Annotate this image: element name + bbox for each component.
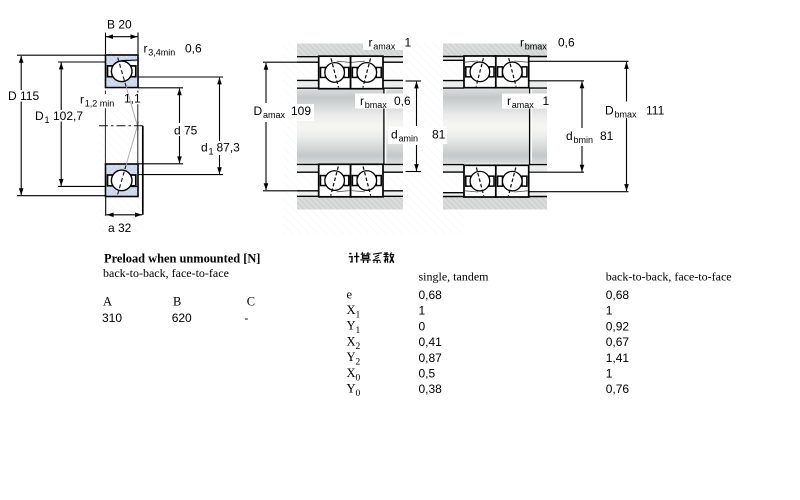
svg-text:X: X	[347, 303, 356, 317]
svg-text:X: X	[347, 366, 356, 380]
svg-text:1,1: 1,1	[124, 92, 141, 106]
svg-text:amax: amax	[263, 110, 286, 120]
svg-text:D: D	[254, 104, 263, 118]
svg-text:d: d	[201, 141, 208, 155]
svg-text:1: 1	[209, 147, 214, 157]
svg-text:amax: amax	[373, 42, 396, 52]
svg-text:0,68: 0,68	[419, 288, 443, 302]
svg-text:0,67: 0,67	[606, 335, 630, 349]
svg-text:r: r	[369, 36, 373, 50]
svg-text:0,92: 0,92	[606, 319, 630, 333]
svg-text:bmax: bmax	[615, 110, 638, 120]
svg-text:d: d	[566, 129, 573, 143]
svg-text:back-to-back, face-to-face: back-to-back, face-to-face	[103, 266, 229, 280]
svg-text:0,6: 0,6	[185, 42, 202, 56]
svg-text:1: 1	[405, 36, 412, 50]
svg-text:B: B	[173, 295, 181, 309]
svg-text:d 75: d 75	[174, 124, 198, 138]
svg-text:620: 620	[172, 311, 192, 325]
svg-text:a 32: a 32	[108, 221, 132, 235]
svg-text:X: X	[347, 334, 356, 348]
svg-text:1: 1	[419, 304, 426, 318]
svg-text:87,3: 87,3	[217, 141, 241, 155]
svg-text:C: C	[247, 295, 255, 309]
svg-text:A: A	[103, 295, 112, 309]
svg-text:d: d	[391, 128, 398, 142]
svg-text:-: -	[244, 311, 248, 325]
svg-text:3,4min: 3,4min	[148, 48, 175, 58]
svg-text:amax: amax	[512, 100, 535, 110]
svg-text:0,76: 0,76	[606, 382, 630, 396]
svg-text:1: 1	[356, 311, 361, 321]
svg-text:bmax: bmax	[365, 100, 388, 110]
svg-text:109: 109	[291, 104, 311, 118]
svg-text:0,41: 0,41	[419, 335, 443, 349]
svg-text:111: 111	[646, 104, 665, 118]
svg-text:1: 1	[543, 94, 550, 108]
svg-text:e: e	[347, 287, 353, 301]
svg-text:0: 0	[356, 389, 361, 399]
svg-text:0,87: 0,87	[419, 351, 443, 365]
svg-text:single, tandem: single, tandem	[419, 270, 490, 284]
svg-text:bmin: bmin	[574, 135, 594, 145]
svg-text:r: r	[80, 93, 84, 107]
svg-text:r: r	[507, 94, 511, 108]
svg-text:D: D	[605, 104, 614, 118]
svg-text:Y: Y	[347, 319, 356, 333]
svg-text:Y: Y	[347, 350, 356, 364]
svg-text:1: 1	[606, 367, 613, 381]
svg-text:0,6: 0,6	[394, 94, 411, 108]
svg-text:1: 1	[356, 326, 361, 336]
svg-text:back-to-back, face-to-face: back-to-back, face-to-face	[606, 270, 732, 284]
svg-text:Y: Y	[347, 382, 356, 396]
svg-text:102,7: 102,7	[53, 109, 83, 123]
svg-text:81: 81	[432, 128, 446, 142]
svg-text:r: r	[520, 36, 524, 50]
svg-text:r: r	[360, 94, 364, 108]
svg-text:r: r	[144, 42, 148, 56]
svg-text:0,68: 0,68	[606, 288, 630, 302]
svg-text:1: 1	[45, 115, 50, 125]
svg-text:0: 0	[356, 373, 361, 383]
svg-text:0,6: 0,6	[558, 36, 575, 50]
svg-text:amin: amin	[399, 134, 419, 144]
svg-text:Preload when unmounted [N]: Preload when unmounted [N]	[104, 252, 260, 266]
svg-text:D 115: D 115	[8, 89, 39, 103]
svg-text:D: D	[35, 109, 44, 123]
svg-text:0: 0	[419, 319, 426, 333]
svg-text:1: 1	[606, 304, 613, 318]
svg-text:B 20: B 20	[107, 18, 132, 32]
svg-text:310: 310	[102, 311, 122, 325]
svg-text:2: 2	[356, 358, 361, 368]
svg-text:1,41: 1,41	[606, 351, 630, 365]
svg-text:bmax: bmax	[525, 42, 548, 52]
svg-text:1,2 min: 1,2 min	[85, 99, 115, 109]
svg-text:0,5: 0,5	[419, 367, 436, 381]
svg-text:2: 2	[356, 342, 361, 352]
svg-text:0,38: 0,38	[419, 382, 443, 396]
svg-text:81: 81	[600, 129, 614, 143]
